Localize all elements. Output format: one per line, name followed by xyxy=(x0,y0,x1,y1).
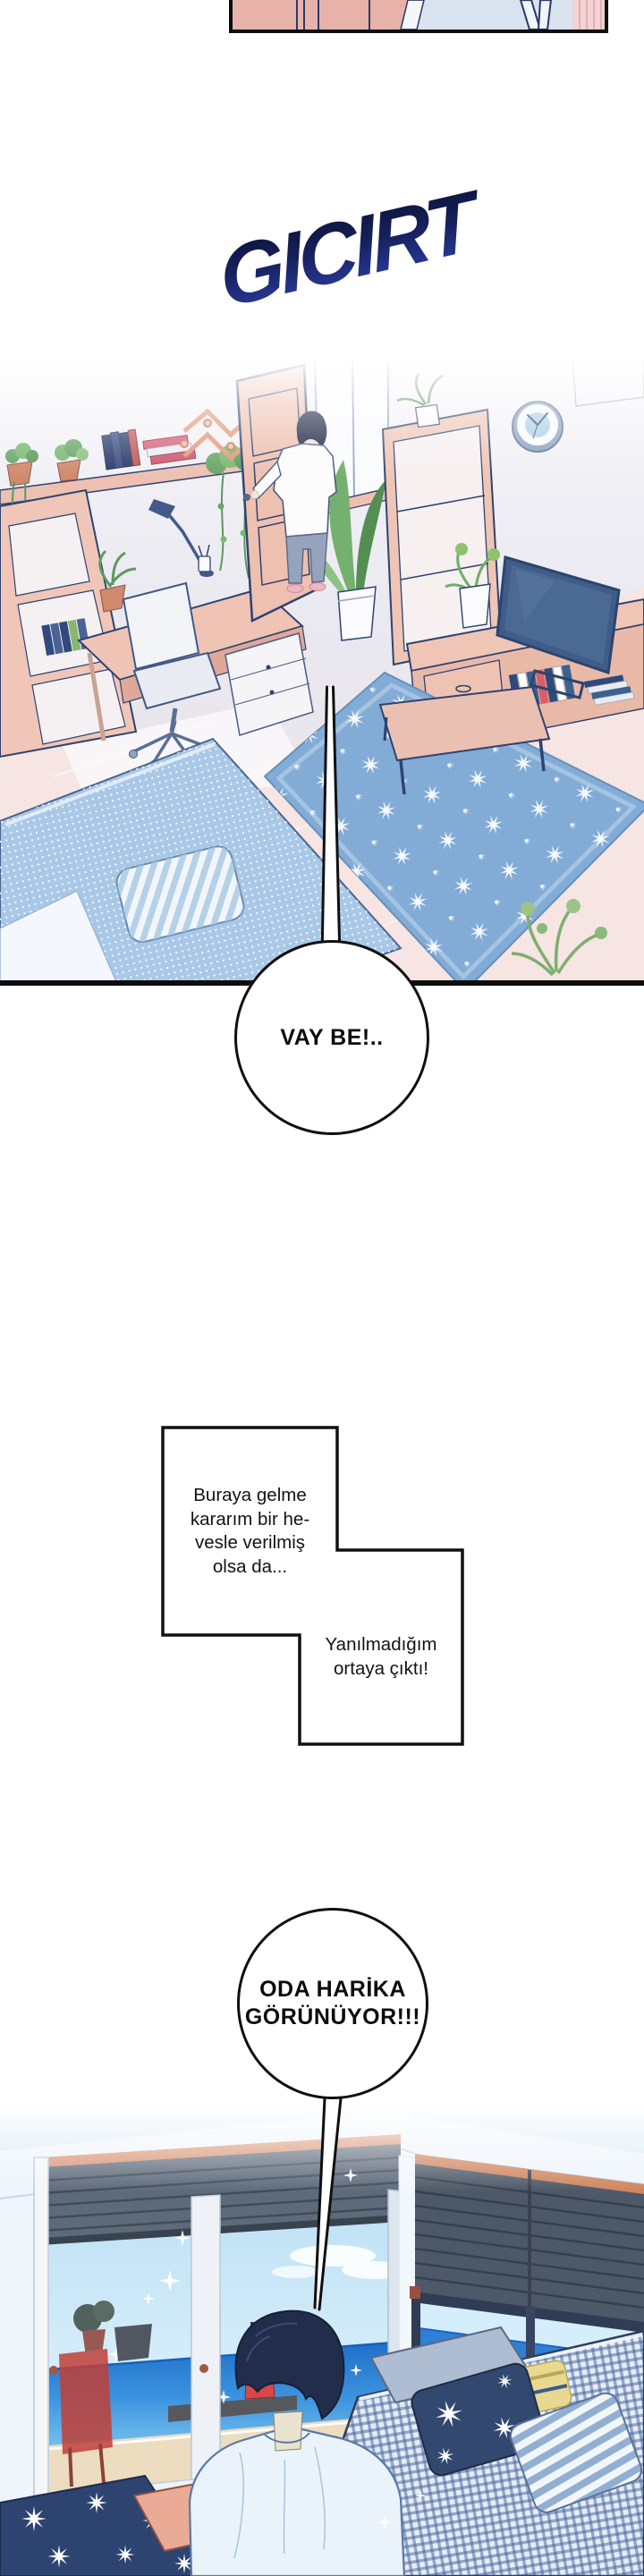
seaside-panel-art xyxy=(0,2102,644,2576)
oda-line: ODA HARİKA xyxy=(245,1976,420,2004)
corner-shelf xyxy=(572,356,644,406)
caption-line: Yanılmadığım xyxy=(326,1633,437,1657)
speech-bubble-oda: ODA HARİKA GÖRÜNÜYOR!!! xyxy=(237,1908,428,2099)
caption-line: Buraya gelme xyxy=(193,1484,306,1508)
top-cropped-panel xyxy=(229,0,608,33)
slipper xyxy=(309,583,326,591)
vay-text: VAY BE!.. xyxy=(280,1024,383,1052)
caption-line: vesle verilmiş xyxy=(195,1531,305,1555)
room-panel-art xyxy=(0,356,644,986)
caption-line: kararım bir he- xyxy=(191,1508,309,1532)
speech-bubble-vay: VAY BE!.. xyxy=(234,940,429,1135)
webtoon-page: GICIRT xyxy=(0,0,644,2576)
room-panel xyxy=(0,356,644,986)
red-chair xyxy=(59,2349,113,2454)
oda-line: GÖRÜNÜYOR!!! xyxy=(245,2004,420,2031)
person-neck xyxy=(274,2411,302,2451)
wall-clock xyxy=(513,402,563,452)
slipper xyxy=(287,585,303,593)
caption-line: ortaya çıktı! xyxy=(334,1657,428,1682)
books-navy xyxy=(101,429,140,470)
oda-text: ODA HARİKA GÖRÜNÜYOR!!! xyxy=(245,1976,420,2031)
top-strip-art xyxy=(233,0,605,30)
caption-text-2: Yanılmadığım ortaya çıktı! xyxy=(300,1550,462,1744)
window-frame xyxy=(34,2157,48,2517)
caption-line: olsa da... xyxy=(213,1555,287,1580)
sfx-gicirt-text: GICIRT xyxy=(215,158,540,327)
seaside-panel xyxy=(0,2102,644,2576)
door-handle xyxy=(243,494,250,501)
